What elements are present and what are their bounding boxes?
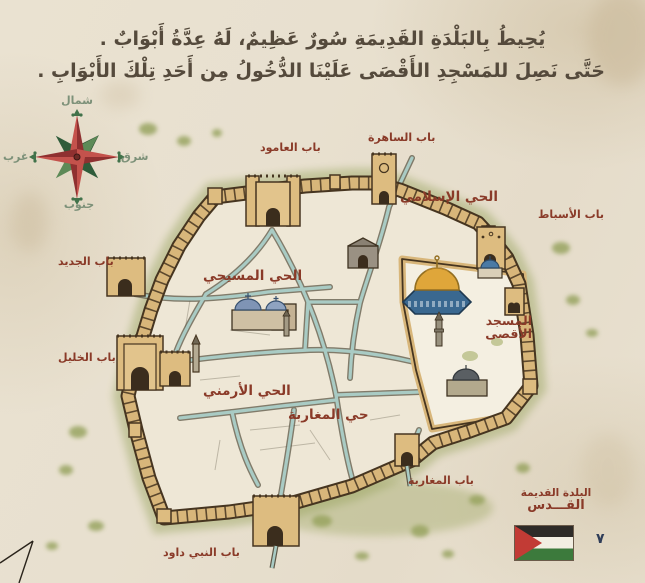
gate-label-bab-alasbat: باب الأسباط <box>538 208 604 221</box>
compass-rose-icon <box>29 109 125 205</box>
gate-label-bab-almagharba: باب المغاربة <box>408 474 474 487</box>
golden-gate <box>505 288 524 315</box>
legend-title-line-2: القـــدس <box>519 498 593 513</box>
gate-label-bab-alamud: باب العامود <box>260 141 321 154</box>
damascus-gate <box>246 176 300 226</box>
quarter-label-islamic: الحي الإسلامي <box>400 189 498 205</box>
legend-title: البلدة القديمة القـــدس <box>519 487 593 513</box>
compass-label-east: شرق <box>121 150 149 163</box>
quarter-label-christian: الحي المسيحي <box>203 268 302 284</box>
quarter-label-magharba: حي المغاربة <box>288 407 369 423</box>
book-page: يُحِيطُ بِالبَلْدَةِ القَدِيمَةِ سُورٌ ع… <box>0 0 645 583</box>
flag-triangle <box>515 526 542 560</box>
christian-quarter-minaret <box>283 310 290 336</box>
palestine-flag-icon <box>514 525 574 561</box>
landmark-label-aqsa: المسجد الأقصى <box>490 314 532 340</box>
zion-gate <box>253 496 299 568</box>
herod-gate-tower <box>372 154 396 204</box>
compass-label-north: شمال <box>47 94 107 107</box>
page-title-line-1: يُحِيطُ بِالبَلْدَةِ القَدِيمَةِ سُورٌ ع… <box>40 28 605 50</box>
quarter-label-armenian: الحي الأرمني <box>203 383 291 399</box>
page-title-line-2: حَتَّى نَصِلَ للمَسْجِدِ الأَقْصَى عَلَي… <box>40 60 605 82</box>
aqsa-label-line-2: الأقصى <box>490 327 532 340</box>
gate-label-bab-alnabi-dawud: باب النبي داود <box>163 546 240 559</box>
gate-label-bab-alsahira: باب الساهرة <box>368 131 435 144</box>
gate-label-bab-aljadid: باب الجديد <box>58 255 114 268</box>
jaffa-gate <box>117 336 163 390</box>
page-number: ٧ <box>596 531 605 547</box>
gate-label-bab-alkhalil: باب الخليل <box>58 351 116 364</box>
compass-label-south: جنوب <box>49 198 109 211</box>
page-corner-fold-icon <box>0 541 33 583</box>
compass-label-west: غرب <box>3 150 28 163</box>
